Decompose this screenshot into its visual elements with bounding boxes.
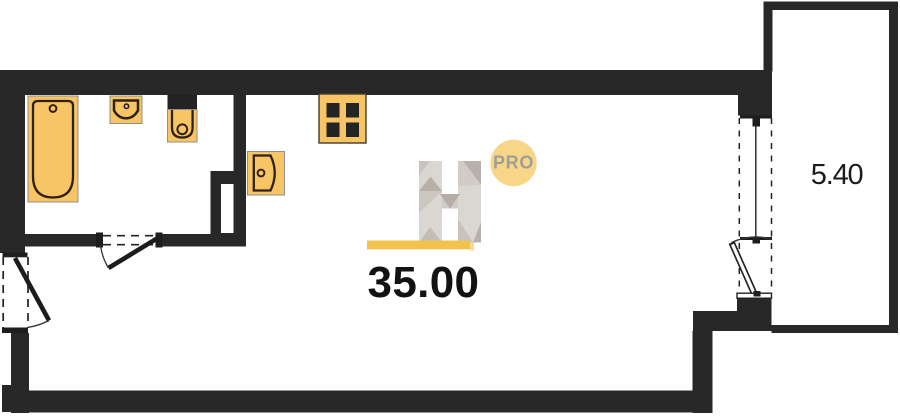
- svg-text:5.40: 5.40: [811, 159, 863, 191]
- svg-text:35.00: 35.00: [368, 258, 480, 307]
- svg-text:PRO: PRO: [493, 153, 534, 173]
